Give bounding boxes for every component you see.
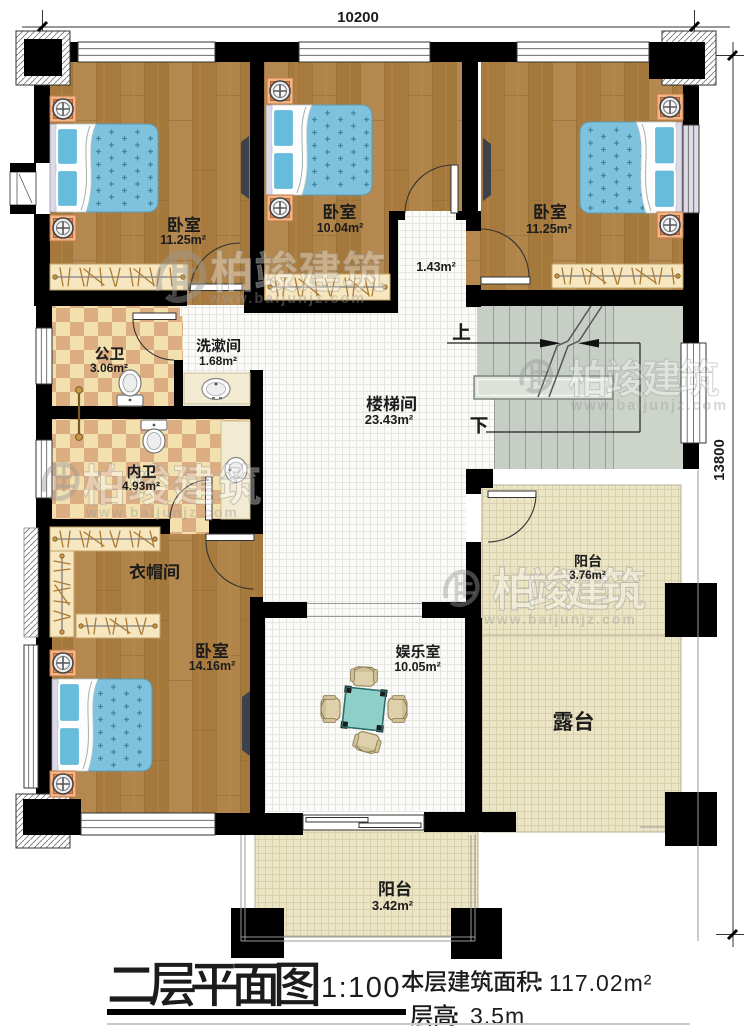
svg-text:11.25m²: 11.25m²	[526, 222, 572, 236]
svg-text:11.25m²: 11.25m²	[160, 233, 206, 247]
svg-text:3.76m²: 3.76m²	[569, 570, 606, 582]
svg-text:1.68m²: 1.68m²	[199, 354, 237, 368]
svg-text:www.baijunjz.com: www.baijunjz.com	[570, 398, 728, 414]
svg-text:www.baijunjz.com: www.baijunjz.com	[483, 611, 637, 627]
svg-text:1.43m²: 1.43m²	[416, 260, 456, 274]
svg-text:10.04m²: 10.04m²	[317, 221, 364, 235]
svg-text:13800: 13800	[711, 439, 728, 481]
svg-text::: :	[452, 1003, 460, 1029]
svg-text:3.5m: 3.5m	[470, 1003, 525, 1029]
svg-text:10200: 10200	[337, 9, 379, 26]
svg-text:3.06m²: 3.06m²	[90, 361, 128, 375]
svg-text:117.02m²: 117.02m²	[549, 970, 652, 996]
svg-text:www.baijunjz.com: www.baijunjz.com	[208, 291, 366, 307]
svg-text::: :	[536, 969, 544, 995]
svg-text:4.93m²: 4.93m²	[122, 479, 160, 493]
svg-text:23.43m²: 23.43m²	[365, 412, 414, 427]
svg-text:www.baijunjz.com: www.baijunjz.com	[85, 504, 239, 520]
svg-text:1:100: 1:100	[321, 972, 401, 1004]
svg-text:14.16m²: 14.16m²	[189, 659, 236, 673]
svg-text:3.42m²: 3.42m²	[372, 898, 414, 913]
svg-text:10.05m²: 10.05m²	[394, 660, 441, 674]
